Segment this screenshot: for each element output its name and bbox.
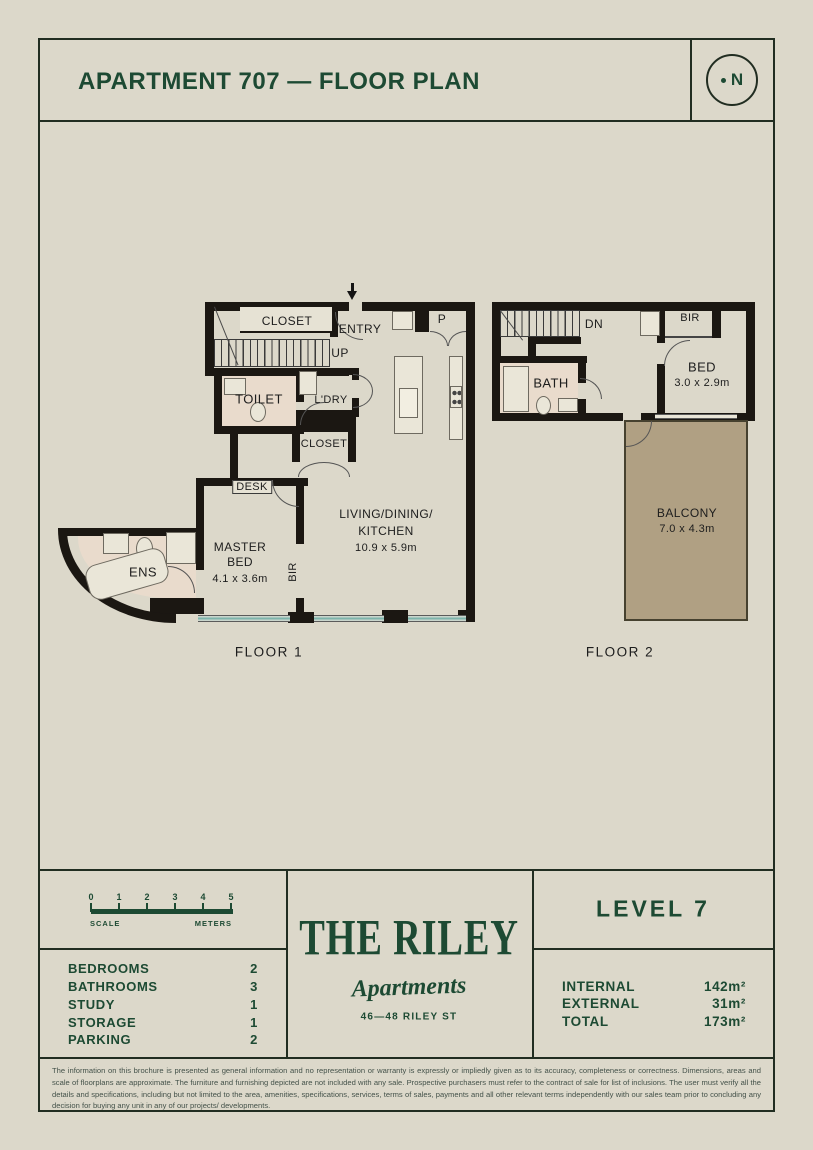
- wall: [214, 376, 222, 433]
- wall: [492, 413, 623, 421]
- room-label-living: LIVING/DINING/: [339, 507, 433, 521]
- door-arc: [580, 378, 602, 399]
- stat-value: 1: [250, 997, 258, 1012]
- stat-label: BEDROOMS: [68, 961, 149, 976]
- room-label-entry: ENTRY: [339, 322, 381, 336]
- area-label: TOTAL: [562, 1014, 609, 1029]
- sink: [640, 311, 660, 336]
- area-value: 142m²: [704, 979, 746, 994]
- door-arc: [353, 374, 373, 391]
- room-label-bir2: BIR: [680, 312, 700, 324]
- stat-label: BATHROOMS: [68, 979, 158, 994]
- grid-line: [38, 948, 286, 950]
- scale-tick-label: 2: [144, 892, 149, 902]
- fridge: [392, 311, 413, 330]
- stat-row: BEDROOMS2: [68, 960, 258, 976]
- washer: [299, 371, 317, 395]
- room-label-toilet: TOILET: [235, 392, 283, 407]
- room-dims-balcony: 7.0 x 4.3m: [659, 523, 714, 535]
- meters-label: METERS: [195, 919, 232, 928]
- room-label-master-2: BED: [227, 555, 253, 569]
- cooktop: [450, 386, 462, 408]
- wall: [214, 426, 304, 434]
- sink: [558, 398, 578, 412]
- area-row: TOTAL173m²: [562, 1013, 746, 1029]
- room-label-living-2: KITCHEN: [358, 524, 413, 538]
- stat-value: 2: [250, 1032, 258, 1047]
- stat-row: BATHROOMS3: [68, 978, 258, 994]
- logo-subtitle: Apartments: [351, 973, 467, 1004]
- toilet-fixture: [536, 396, 551, 415]
- room-label-closet: CLOSET: [262, 314, 312, 328]
- island-sink: [399, 388, 418, 418]
- room-dims-master: 4.1 x 3.6m: [212, 573, 267, 585]
- area-value: 31m²: [712, 996, 746, 1011]
- stat-row: PARKING2: [68, 1031, 258, 1047]
- door-arc: [448, 331, 466, 346]
- wall: [466, 302, 475, 622]
- wall: [657, 364, 665, 414]
- wall: [712, 311, 721, 338]
- stat-row: STORAGE1: [68, 1014, 258, 1030]
- logo-address: 46—48 RILEY ST: [361, 1012, 458, 1023]
- room-label-closet2: CLOSET: [301, 438, 347, 450]
- shower: [166, 532, 196, 564]
- scale-label: SCALE: [90, 919, 120, 928]
- area-row: INTERNAL142m²: [562, 978, 746, 994]
- window: [198, 615, 290, 622]
- stat-value: 1: [250, 1015, 258, 1030]
- room-label-master: MASTER: [214, 540, 266, 554]
- stat-value: 3: [250, 979, 258, 994]
- room-label-laundry: L'DRY: [314, 394, 347, 406]
- area-label: EXTERNAL: [562, 996, 640, 1011]
- room-label-bath: BATH: [533, 376, 568, 391]
- wall: [288, 612, 314, 623]
- stat-row: STUDY1: [68, 996, 258, 1012]
- balcony-area: [624, 420, 748, 621]
- robe-door-line: [665, 336, 712, 338]
- scale-tick-label: 3: [172, 892, 177, 902]
- floor2-caption: FLOOR 2: [586, 645, 654, 660]
- grid-line: [286, 869, 288, 1059]
- wall: [348, 417, 356, 462]
- wall: [578, 399, 586, 415]
- wall: [500, 356, 587, 363]
- stairs-down: [500, 310, 580, 337]
- scale-tick-label: 0: [88, 892, 93, 902]
- area-row: EXTERNAL31m²: [562, 995, 746, 1011]
- window: [408, 615, 466, 622]
- floor1-caption: FLOOR 1: [235, 645, 303, 660]
- door-arc: [324, 462, 350, 477]
- window: [314, 615, 384, 622]
- area-label: INTERNAL: [562, 979, 635, 994]
- wall: [746, 302, 755, 421]
- stat-label: STORAGE: [68, 1015, 136, 1030]
- room-label-ens: ENS: [129, 565, 157, 580]
- room-label-balcony: BALCONY: [657, 506, 717, 520]
- room-label-pantry: P: [438, 312, 446, 326]
- room-dims-bed: 3.0 x 2.9m: [674, 377, 729, 389]
- room-label-bed: BED: [688, 360, 716, 375]
- window: [655, 414, 737, 419]
- room-label-desk: DESK: [232, 480, 272, 494]
- level-title: LEVEL 7: [596, 896, 710, 923]
- logo-wordmark: THE RILEY: [299, 909, 519, 967]
- door-arc: [664, 340, 690, 366]
- door-arc: [298, 462, 324, 477]
- stat-label: PARKING: [68, 1032, 131, 1047]
- wall: [382, 610, 408, 623]
- stat-value: 2: [250, 961, 258, 976]
- brochure-page: { "colors": { "accent_green": "#1d4a33",…: [0, 0, 813, 1150]
- scale-tick-label: 5: [228, 892, 233, 902]
- wall: [196, 536, 204, 570]
- wall: [415, 302, 429, 332]
- wall: [205, 302, 214, 376]
- room-dims-living: 10.9 x 5.9m: [355, 542, 417, 554]
- grid-line: [532, 869, 534, 1059]
- room-label-up: UP: [331, 346, 348, 360]
- room-label-bir: BIR: [286, 560, 300, 584]
- stairs-up: [214, 339, 330, 367]
- disclaimer-text: The information on this brochure is pres…: [38, 1059, 775, 1112]
- wall: [230, 433, 238, 480]
- door-arc: [353, 391, 373, 408]
- sink: [103, 533, 129, 554]
- scale-tick-label: 1: [116, 892, 121, 902]
- stat-label: STUDY: [68, 997, 115, 1012]
- room-label-dn: DN: [585, 317, 603, 331]
- shower: [503, 366, 529, 412]
- grid-line: [38, 869, 775, 871]
- scale-bar-line: [91, 909, 233, 914]
- scale-tick-label: 4: [200, 892, 205, 902]
- door-arc: [272, 480, 299, 507]
- entry-arrow-icon: [347, 291, 357, 300]
- door-arc: [430, 331, 448, 346]
- area-value: 173m²: [704, 1014, 746, 1029]
- grid-line: [532, 948, 775, 950]
